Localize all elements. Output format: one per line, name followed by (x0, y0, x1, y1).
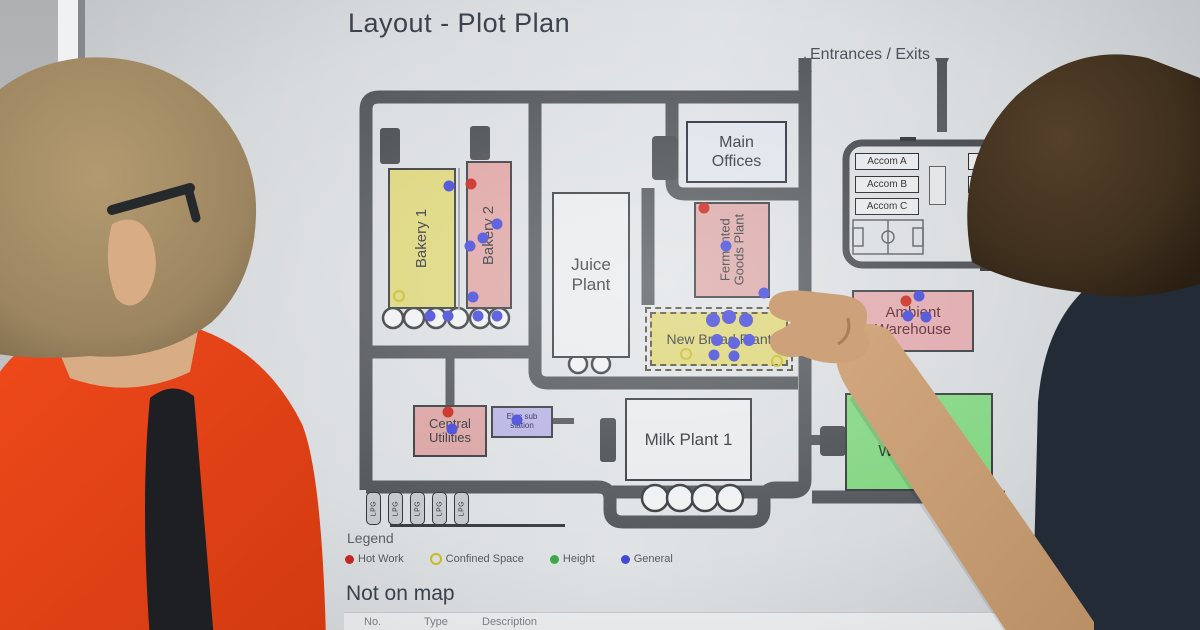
pointing-hand (769, 291, 869, 364)
person-right (769, 54, 1200, 630)
person-left (0, 57, 326, 630)
photo-scene: Bakery 1 Bakery 2 Juice Plant Main Offic… (0, 0, 1200, 630)
people-foreground (0, 0, 1200, 630)
